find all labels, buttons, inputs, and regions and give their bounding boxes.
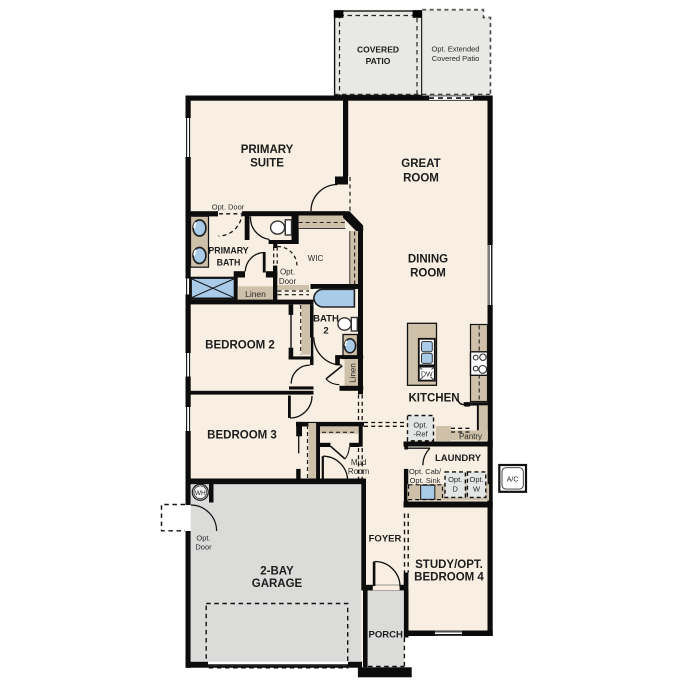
svg-text:Opt. Sink: Opt. Sink bbox=[410, 476, 441, 485]
svg-text:Opt. Extended: Opt. Extended bbox=[432, 45, 480, 54]
svg-text:COVERED: COVERED bbox=[357, 45, 399, 55]
svg-text:BEDROOM 3: BEDROOM 3 bbox=[207, 430, 277, 442]
svg-text:Opt.: Opt. bbox=[448, 475, 462, 484]
svg-text:2-BAY: 2-BAY bbox=[260, 566, 294, 578]
svg-text:Opt.: Opt. bbox=[413, 421, 427, 430]
svg-text:A/C: A/C bbox=[507, 476, 519, 483]
svg-text:WIC: WIC bbox=[308, 254, 324, 263]
svg-text:Covered Patio: Covered Patio bbox=[432, 54, 480, 63]
svg-text:D: D bbox=[452, 485, 458, 494]
svg-text:PRIMARY: PRIMARY bbox=[208, 246, 248, 256]
svg-text:PATIO: PATIO bbox=[366, 56, 391, 66]
svg-text:BATH: BATH bbox=[217, 258, 241, 268]
svg-text:ROOM: ROOM bbox=[403, 173, 439, 185]
svg-text:Opt. Cab/: Opt. Cab/ bbox=[409, 467, 442, 476]
svg-text:Linen: Linen bbox=[245, 289, 266, 299]
svg-text:Opt. Door: Opt. Door bbox=[212, 203, 245, 212]
svg-text:BATH: BATH bbox=[313, 314, 339, 325]
svg-text:GARAGE: GARAGE bbox=[252, 578, 303, 590]
svg-text:WH: WH bbox=[195, 490, 206, 497]
svg-text:Door: Door bbox=[279, 277, 297, 286]
svg-text:STUDY/OPT.: STUDY/OPT. bbox=[415, 559, 483, 571]
svg-text:PRIMARY: PRIMARY bbox=[241, 144, 294, 156]
svg-text:Pantry: Pantry bbox=[459, 432, 482, 441]
svg-text:W: W bbox=[473, 485, 481, 494]
svg-text:BEDROOM 4: BEDROOM 4 bbox=[414, 572, 484, 584]
svg-text:FOYER: FOYER bbox=[369, 534, 402, 545]
svg-text:SUITE: SUITE bbox=[250, 158, 284, 170]
svg-text:-Ref: -Ref bbox=[413, 430, 428, 439]
svg-text:Opt.: Opt. bbox=[196, 534, 210, 543]
svg-text:GREAT: GREAT bbox=[401, 158, 440, 170]
svg-text:DINING: DINING bbox=[408, 254, 448, 266]
svg-text:Opt.: Opt. bbox=[280, 268, 295, 277]
svg-text:DW: DW bbox=[421, 371, 433, 378]
svg-text:PORCH: PORCH bbox=[369, 630, 403, 641]
svg-text:Opt.: Opt. bbox=[470, 475, 484, 484]
svg-text:Door: Door bbox=[195, 543, 212, 552]
svg-text:2: 2 bbox=[323, 326, 328, 337]
svg-text:ROOM: ROOM bbox=[410, 268, 446, 280]
svg-text:LAUNDRY: LAUNDRY bbox=[435, 453, 482, 464]
svg-text:Linen: Linen bbox=[349, 363, 358, 383]
svg-text:KITCHEN: KITCHEN bbox=[408, 393, 459, 405]
svg-text:BEDROOM 2: BEDROOM 2 bbox=[205, 340, 275, 352]
